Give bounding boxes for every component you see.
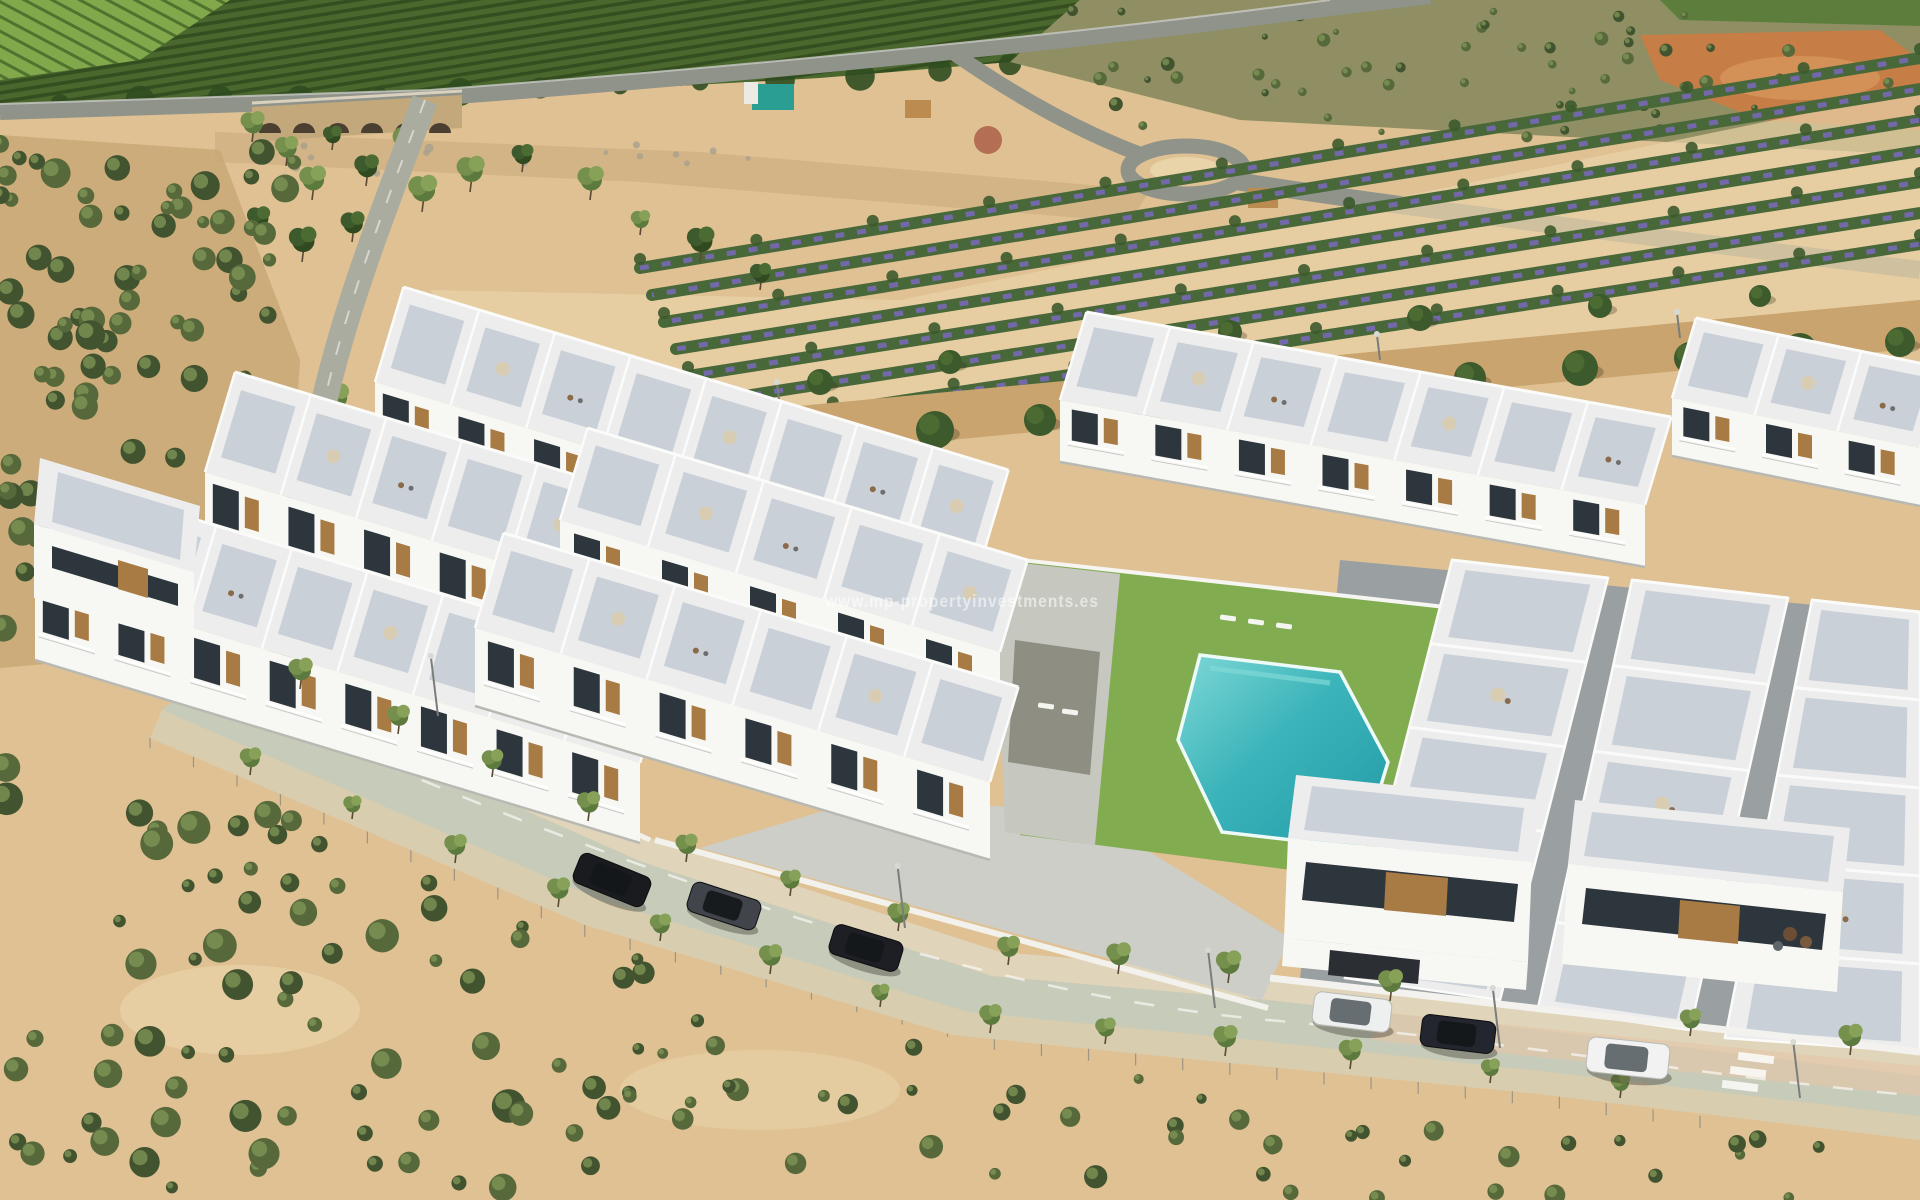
red-plaza — [974, 126, 1002, 154]
front-villa-1 — [1282, 775, 1540, 990]
sand-patch — [620, 1050, 900, 1130]
aerial-photo: www.mp-propertyinvestments.es — [0, 0, 1920, 1200]
wood-deck — [1008, 640, 1100, 775]
watermark: www.mp-propertyinvestments.es — [824, 591, 1099, 611]
aerial-photo-stage: www.mp-propertyinvestments.es — [0, 0, 1920, 1200]
storage-hut — [905, 100, 931, 118]
front-villa-2 — [1562, 800, 1850, 992]
